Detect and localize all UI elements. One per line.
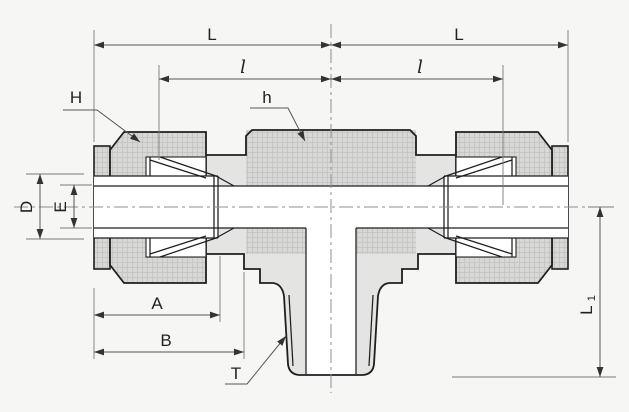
label-L1-subscript: 1 <box>586 295 598 301</box>
label-L-left: L <box>207 25 216 44</box>
label-T: T <box>231 364 241 383</box>
svg-text:L 1: L 1 <box>577 295 598 315</box>
label-h: h <box>262 88 271 107</box>
label-l-left: l <box>240 57 246 78</box>
label-H: H <box>70 88 82 107</box>
label-E: E <box>51 201 70 212</box>
label-L-right: L <box>454 25 463 44</box>
label-L1-main: L <box>577 306 596 315</box>
label-l-right: l <box>417 57 423 78</box>
label-A: A <box>151 294 163 313</box>
label-L1: L 1 <box>577 295 598 315</box>
label-D: D <box>17 201 36 213</box>
label-B: B <box>160 331 171 350</box>
tee-fitting-drawing: L L l l H h D E A B T L 1 <box>0 0 629 412</box>
technical-drawing-page: L L l l H h D E A B T L 1 <box>0 0 629 412</box>
